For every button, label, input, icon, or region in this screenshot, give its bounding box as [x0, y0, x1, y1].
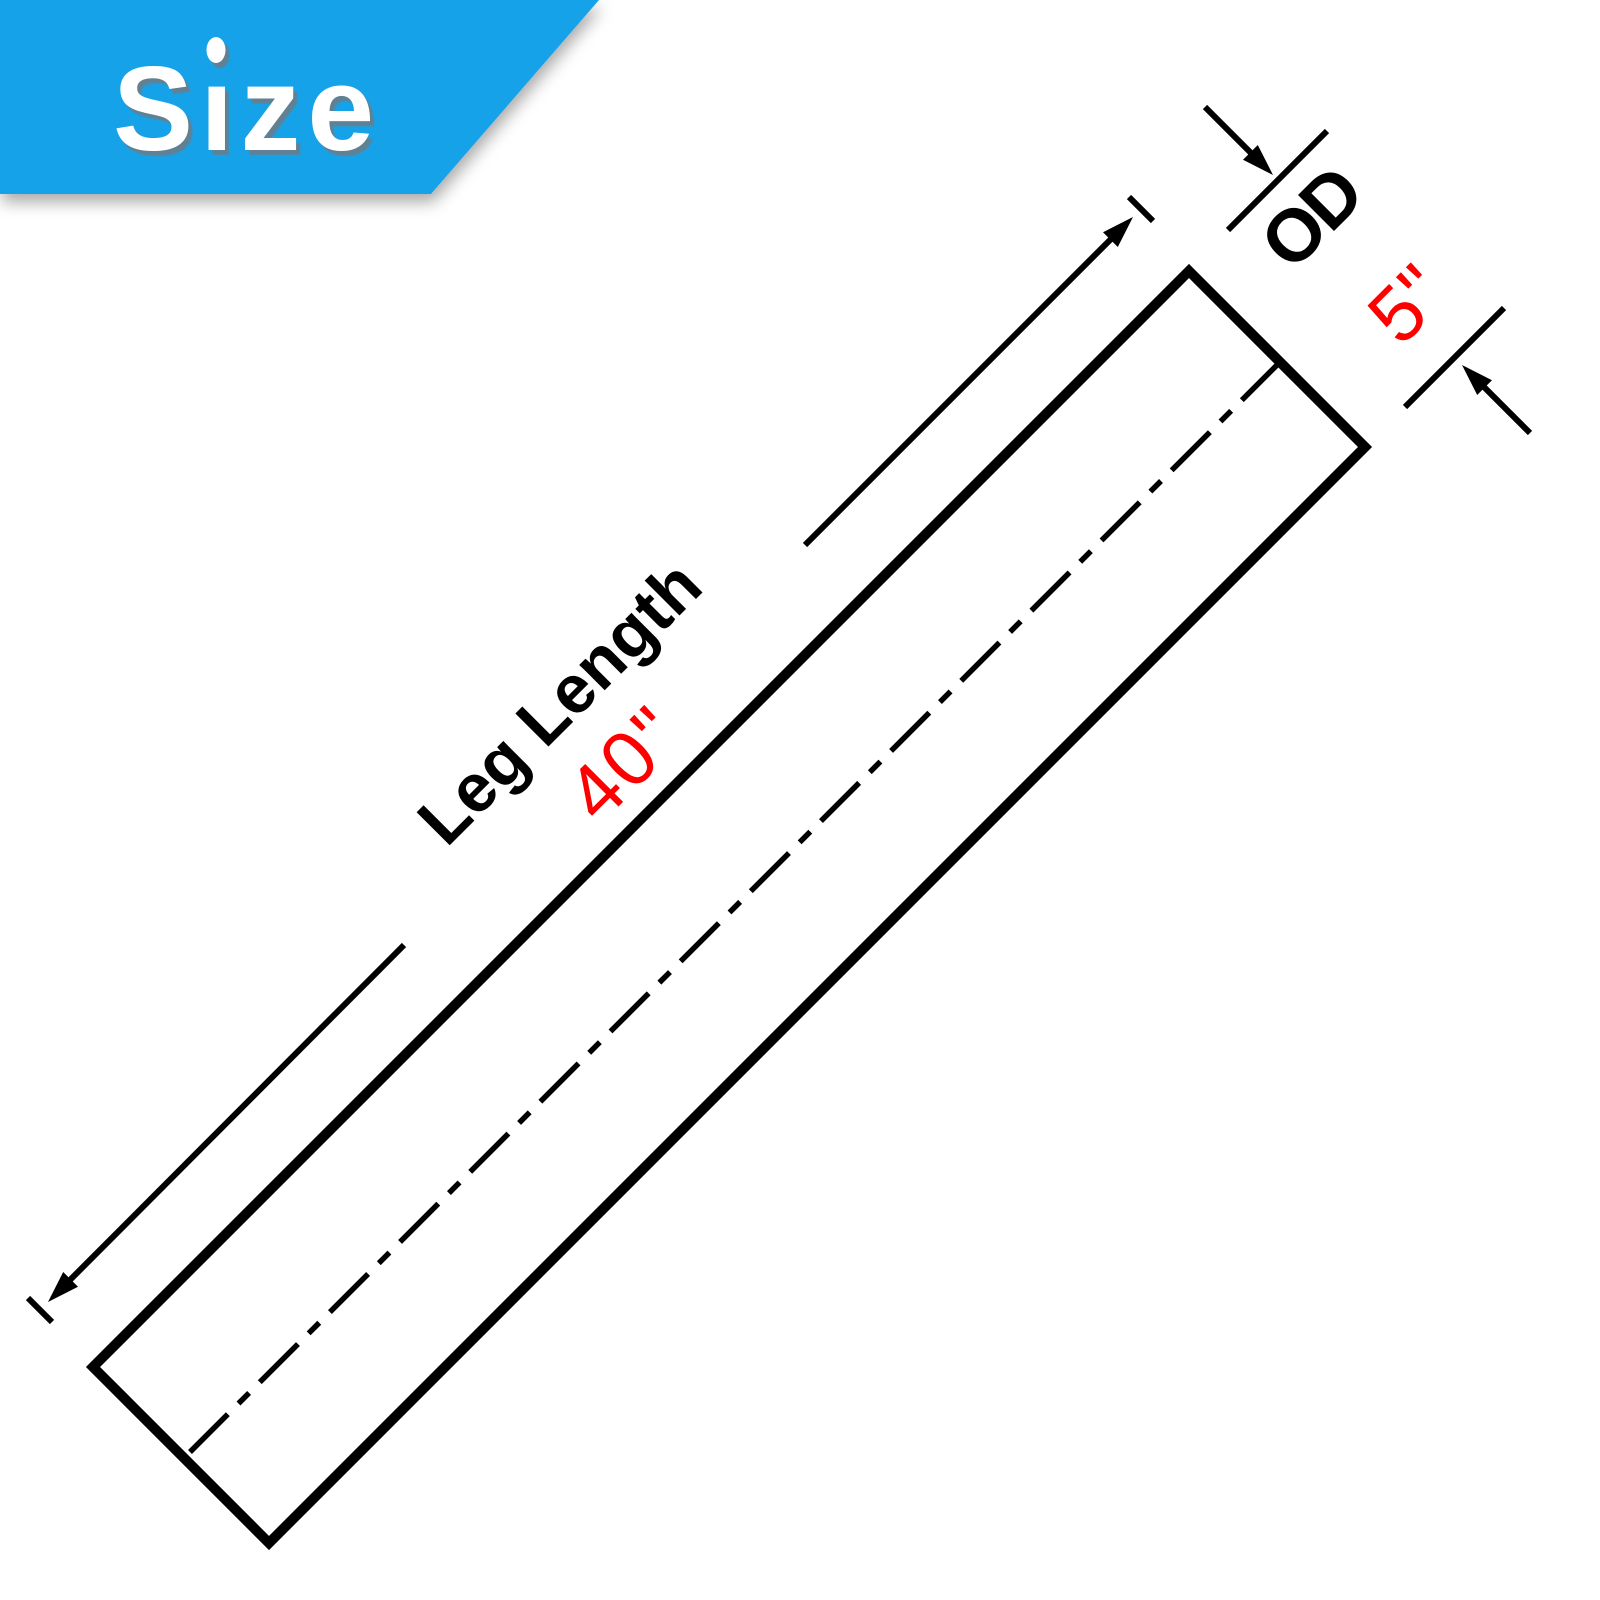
svg-text:Sıze: Sıze [113, 42, 381, 176]
